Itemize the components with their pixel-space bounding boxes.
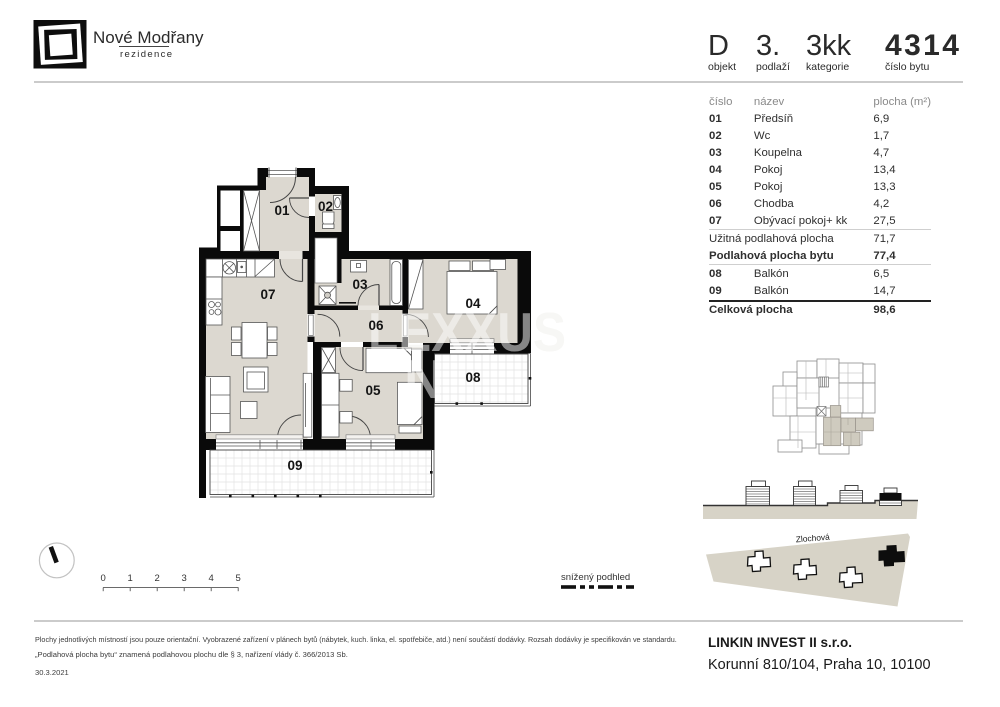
svg-text:2: 2 [155,573,160,584]
svg-text:03: 03 [352,277,368,292]
svg-text:07: 07 [260,287,275,302]
svg-text:02: 02 [318,199,333,214]
svg-text:08: 08 [465,370,481,385]
svg-text:04: 04 [465,296,481,311]
svg-text:0: 0 [101,573,106,584]
svg-text:1: 1 [128,573,133,584]
svg-text:3: 3 [182,573,187,584]
svg-text:09: 09 [287,458,302,473]
svg-text:05: 05 [365,383,381,398]
svg-text:5: 5 [236,573,241,584]
svg-text:01: 01 [274,203,290,218]
svg-text:4: 4 [209,573,214,584]
svg-text:N: N [404,348,444,410]
svg-text:06: 06 [368,318,384,333]
svg-text:snížený podhled: snížený podhled [561,572,630,583]
